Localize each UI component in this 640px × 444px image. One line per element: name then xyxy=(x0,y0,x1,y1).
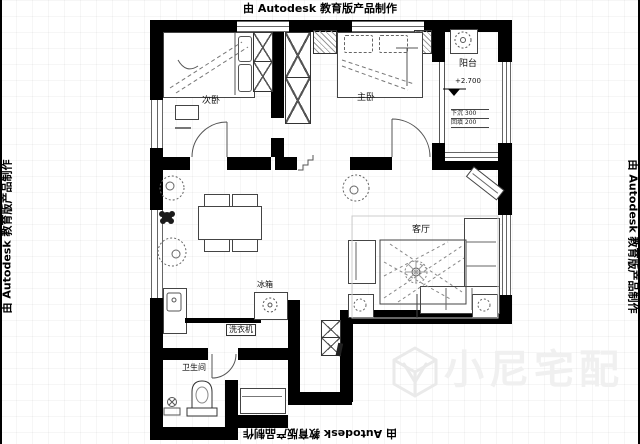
sink-icon xyxy=(167,293,181,311)
autodesk-watermark-left: 由 Autodesk 教育版产品制作 xyxy=(1,137,14,337)
linework-layer xyxy=(0,0,640,444)
balcony-elevation: +2.700 xyxy=(455,78,481,85)
room-label-living-room: 客厅 xyxy=(412,226,430,235)
room-label-master-bedroom: 主卧 xyxy=(357,94,375,103)
balcony-note-line1: 下沉 300 xyxy=(451,110,489,119)
door-swing-bathroom xyxy=(212,354,236,378)
tv-cabinet-angled xyxy=(467,167,504,200)
balcony-note: 下沉 300 回填 200 xyxy=(451,109,489,128)
room-label-bathroom: 卫生间 xyxy=(182,364,206,372)
autodesk-watermark-right: 由 Autodesk 教育版产品制作 xyxy=(627,137,640,337)
room-label-secondary-bedroom: 次卧 xyxy=(202,97,220,106)
washer-drum-icon xyxy=(455,32,471,48)
floorplan-canvas: 小尼宅配 xyxy=(0,0,640,444)
door-swing-secondary xyxy=(192,122,227,157)
fridge-icon xyxy=(263,298,277,312)
balcony-note-line2: 回填 200 xyxy=(451,119,489,128)
plant-icon xyxy=(158,175,369,266)
elevation-marker-icon xyxy=(443,89,466,96)
flower-icon xyxy=(159,211,175,224)
washing-machine-label: 洗衣机 xyxy=(226,324,256,336)
autodesk-watermark-top: 由 Autodesk 教育版产品制作 xyxy=(220,2,420,15)
door-hinge-glyph xyxy=(336,343,344,357)
room-label-balcony: 阳台 xyxy=(459,60,477,69)
fridge-label: 冰箱 xyxy=(257,281,273,289)
floor-drain-icon xyxy=(164,398,180,416)
rug-icon xyxy=(380,240,466,304)
door-swing-master xyxy=(392,119,430,157)
bed-master-folds-icon xyxy=(342,48,418,90)
step-symbol-icon xyxy=(298,155,313,170)
autodesk-watermark-bottom: 由 Autodesk 教育版产品制作 xyxy=(220,427,420,440)
bed-secondary-folds-icon xyxy=(170,33,248,95)
toilet-icon xyxy=(187,381,217,416)
